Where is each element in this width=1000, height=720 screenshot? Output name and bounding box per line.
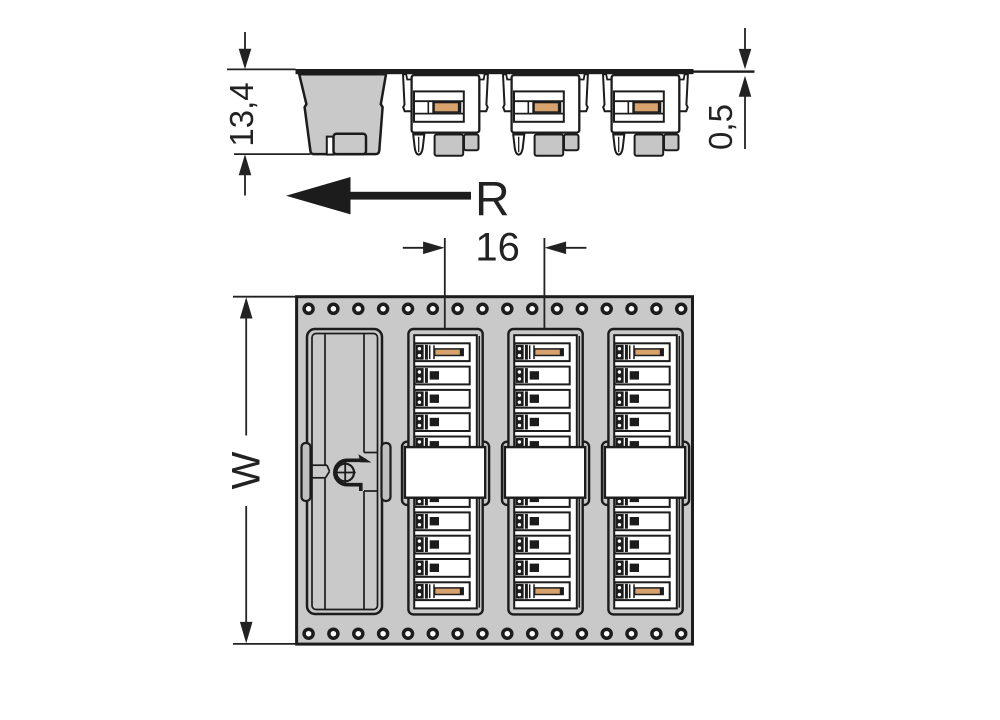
svg-text:13,4: 13,4 <box>223 82 260 146</box>
svg-text:0,5: 0,5 <box>702 104 739 150</box>
svg-text:W: W <box>225 451 269 489</box>
svg-text:16: 16 <box>475 226 520 270</box>
svg-text:R: R <box>475 174 510 227</box>
